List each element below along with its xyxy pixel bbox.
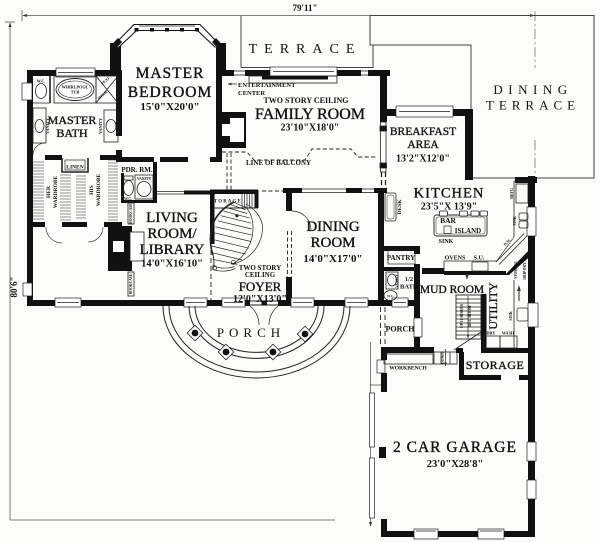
svg-text:14'0"X17'0": 14'0"X17'0" — [303, 253, 362, 265]
svg-text:BOOKCASE: BOOKCASE — [129, 273, 133, 294]
svg-text:UTILITY: UTILITY — [486, 282, 500, 330]
svg-text:BAR: BAR — [440, 216, 456, 225]
svg-text:15'0"X20'0": 15'0"X20'0" — [140, 101, 199, 113]
svg-text:BATH: BATH — [400, 284, 418, 291]
svg-text:SINK: SINK — [513, 216, 517, 225]
svg-text:ROOM/: ROOM/ — [147, 226, 197, 242]
svg-text:W.C.: W.C. — [37, 79, 46, 84]
svg-text:W.C.: W.C. — [387, 294, 394, 298]
svg-text:TERRACE: TERRACE — [486, 98, 580, 113]
svg-text:VANITY: VANITY — [98, 118, 103, 134]
svg-text:PANTRY: PANTRY — [387, 254, 415, 262]
svg-text:REFG: REFG — [510, 188, 514, 199]
svg-text:OVENS: OVENS — [445, 256, 466, 262]
svg-text:ISLAND: ISLAND — [455, 227, 481, 235]
svg-text:DINING: DINING — [493, 82, 572, 97]
svg-text:MASTER: MASTER — [136, 65, 205, 82]
svg-text:80'6": 80'6" — [9, 277, 19, 298]
svg-text:WORKBENCH: WORKBENCH — [389, 366, 427, 372]
svg-text:BEDROOM: BEDROOM — [128, 84, 213, 101]
svg-text:S.U.: S.U. — [474, 256, 485, 262]
svg-text:DRIP DRY: DRIP DRY — [523, 262, 527, 280]
svg-text:LINEN: LINEN — [66, 165, 83, 171]
svg-text:HIS: HIS — [89, 185, 95, 194]
svg-text:FOYER: FOYER — [239, 279, 282, 294]
svg-text:PORCH: PORCH — [386, 325, 416, 334]
svg-text:MUD ROOM: MUD ROOM — [420, 284, 484, 296]
svg-text:79'11": 79'11" — [292, 3, 317, 13]
svg-text:LIBRARY: LIBRARY — [139, 242, 204, 258]
svg-text:ENTERTAINMENT: ENTERTAINMENT — [238, 82, 296, 89]
svg-text:UP 10 RISERS: UP 10 RISERS — [460, 304, 464, 328]
svg-text:WASH: WASH — [502, 331, 515, 336]
svg-text:2 CAR GARAGE: 2 CAR GARAGE — [393, 439, 517, 456]
svg-text:CENTER: CENTER — [238, 90, 265, 97]
svg-text:23'0"X28'8": 23'0"X28'8" — [427, 459, 484, 470]
svg-text:1/2: 1/2 — [405, 276, 413, 283]
svg-text:PDR. RM.: PDR. RM. — [121, 166, 153, 174]
svg-text:TWO STORY CEILING: TWO STORY CEILING — [263, 96, 348, 105]
svg-text:DINING: DINING — [306, 219, 359, 235]
svg-text:VANITY: VANITY — [137, 177, 152, 181]
svg-text:FAMILY ROOM: FAMILY ROOM — [255, 106, 365, 123]
svg-text:AREA: AREA — [407, 139, 439, 151]
svg-text:SINK: SINK — [509, 311, 513, 320]
svg-text:LIVING: LIVING — [146, 210, 198, 226]
svg-text:TUB: TUB — [71, 90, 80, 95]
svg-text:13'2"X12'0": 13'2"X12'0" — [396, 154, 450, 165]
svg-text:14'0"X16'10": 14'0"X16'10" — [141, 259, 203, 270]
svg-text:CEILING: CEILING — [245, 271, 276, 279]
svg-text:KITCHEN: KITCHEN — [414, 186, 485, 202]
svg-text:LINE OF BALCONY: LINE OF BALCONY — [246, 159, 311, 167]
svg-text:HER: HER — [46, 185, 52, 198]
svg-text:BREAKFAST: BREAKFAST — [390, 126, 456, 138]
svg-text:BATH: BATH — [56, 126, 88, 140]
svg-text:STORAGE: STORAGE — [466, 358, 525, 372]
svg-text:SINK: SINK — [439, 239, 454, 245]
svg-text:PORCH: PORCH — [217, 325, 285, 340]
svg-text:DRY: DRY — [487, 331, 496, 336]
svg-text:VANITY: VANITY — [396, 274, 400, 288]
svg-text:BOOKCASE: BOOKCASE — [129, 203, 133, 224]
svg-text:ROOM: ROOM — [310, 235, 355, 251]
svg-text:WARDROBE: WARDROBE — [53, 175, 59, 208]
svg-text:23'5"X 13'9": 23'5"X 13'9" — [421, 202, 477, 213]
svg-text:STORAGE: STORAGE — [514, 261, 518, 279]
svg-text:DOWN: DOWN — [441, 352, 445, 364]
svg-text:TERRACE: TERRACE — [249, 42, 362, 57]
svg-text:23'10"X18'0": 23'10"X18'0" — [281, 123, 340, 134]
svg-text:W.C.: W.C. — [124, 197, 132, 201]
svg-text:12'0"X13'0": 12'0"X13'0" — [233, 294, 287, 305]
svg-text:MASTER: MASTER — [48, 113, 97, 127]
svg-text:REC ROOM: REC ROOM — [468, 305, 472, 327]
svg-text:WARDROBE: WARDROBE — [96, 173, 102, 206]
svg-text:DESK: DESK — [397, 199, 403, 215]
